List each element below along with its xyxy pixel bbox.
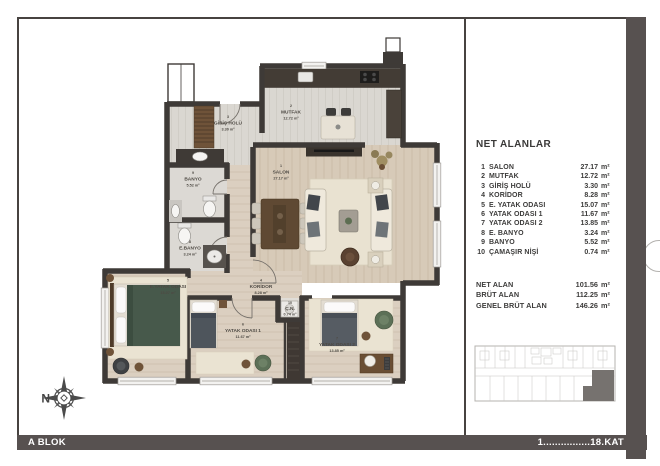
total-row: NET ALAN 101.56 m² bbox=[476, 280, 614, 290]
room-name: KORİDOR bbox=[489, 191, 584, 200]
area-unit: m² bbox=[601, 301, 614, 311]
room-area: 5.52 bbox=[584, 238, 598, 247]
room-area: 15.07 bbox=[580, 201, 598, 210]
total-area: 112.25 bbox=[576, 290, 598, 300]
nightstand bbox=[219, 300, 227, 308]
room-area: 3.30 bbox=[584, 182, 598, 191]
total-row: BRÜT ALAN 112.25 m² bbox=[476, 290, 614, 300]
total-area: 101.56 bbox=[576, 280, 598, 290]
svg-text:7: 7 bbox=[336, 337, 338, 341]
room-number: 2 bbox=[476, 172, 485, 181]
area-unit: m² bbox=[601, 191, 614, 200]
tall-cabinet bbox=[387, 90, 402, 138]
room-name: SALON bbox=[489, 163, 580, 172]
room-area: 8.28 bbox=[584, 191, 598, 200]
room-area: 12.72 bbox=[580, 172, 598, 181]
svg-text:3: 3 bbox=[227, 115, 229, 119]
svg-text:10: 10 bbox=[288, 301, 292, 305]
room-area: 3.24 bbox=[584, 229, 598, 238]
legend-row: 4 KORİDOR 8.28 m² bbox=[476, 191, 614, 200]
room-name: E. YATAK ODASI bbox=[489, 201, 580, 210]
room-number: 4 bbox=[476, 191, 485, 200]
svg-text:3.24 m²: 3.24 m² bbox=[183, 253, 197, 257]
cooktop bbox=[360, 71, 379, 83]
block-label: A BLOK bbox=[28, 437, 66, 448]
area-unit: m² bbox=[601, 248, 614, 257]
svg-text:6: 6 bbox=[242, 323, 244, 327]
legend-row: 10 ÇAMAŞIR NİŞİ 0.74 m² bbox=[476, 248, 614, 257]
room-area: 27.17 bbox=[580, 163, 598, 172]
svg-text:11.67 m²: 11.67 m² bbox=[236, 335, 252, 339]
panel-divider bbox=[464, 17, 466, 435]
svg-text:BANYO: BANYO bbox=[184, 177, 202, 183]
svg-text:27.17 m²: 27.17 m² bbox=[273, 177, 289, 181]
room-number: 1 bbox=[476, 163, 485, 172]
room-area: 0.74 bbox=[584, 248, 598, 257]
legend-row: 5 E. YATAK ODASI 15.07 m² bbox=[476, 201, 614, 210]
svg-text:MUTFAK: MUTFAK bbox=[281, 110, 302, 116]
plant bbox=[379, 164, 385, 170]
svg-text:5.52 m²: 5.52 m² bbox=[186, 184, 200, 188]
svg-text:1: 1 bbox=[280, 164, 282, 168]
room-number: 9 bbox=[476, 238, 485, 247]
area-unit: m² bbox=[601, 238, 614, 247]
svg-text:3.30 m²: 3.30 m² bbox=[221, 128, 235, 132]
total-name: NET ALAN bbox=[476, 280, 576, 290]
area-unit: m² bbox=[601, 210, 614, 219]
svg-text:KORİDOR: KORİDOR bbox=[250, 283, 273, 290]
room-name: E. BANYO bbox=[489, 229, 584, 238]
room-name: GİRİŞ HOLÜ bbox=[489, 182, 584, 191]
room-name: YATAK ODASI 2 bbox=[489, 219, 580, 228]
svg-text:4: 4 bbox=[260, 279, 262, 283]
svg-text:SALON: SALON bbox=[273, 170, 290, 176]
svg-text:0.74 m²: 0.74 m² bbox=[283, 313, 297, 317]
svg-text:15.07 m²: 15.07 m² bbox=[160, 291, 176, 295]
floor-corridor-horizontal bbox=[188, 271, 302, 298]
net-areas-title: NET ALANLAR bbox=[476, 139, 614, 150]
pouf bbox=[362, 332, 371, 341]
area-unit: m² bbox=[601, 219, 614, 228]
right-accent-bar bbox=[626, 17, 646, 459]
room-area: 11.67 bbox=[581, 210, 598, 219]
legend-row: 8 E. BANYO 3.24 m² bbox=[476, 229, 614, 238]
svg-text:8.28 m²: 8.28 m² bbox=[254, 291, 268, 295]
legend-row: 3 GİRİŞ HOLÜ 3.30 m² bbox=[476, 182, 614, 191]
north-label: N bbox=[41, 392, 50, 406]
svg-text:YATAK ODASI 2: YATAK ODASI 2 bbox=[319, 342, 355, 348]
svg-text:12.72 m²: 12.72 m² bbox=[283, 117, 299, 121]
svg-text:5: 5 bbox=[167, 279, 169, 283]
svg-text:E.BANYO: E.BANYO bbox=[179, 246, 201, 252]
page: 1 SALON 27.17 m² 2 MUTFAK 12.72 m² 3 GİR… bbox=[0, 0, 660, 466]
legend-row: 2 MUTFAK 12.72 m² bbox=[476, 172, 614, 181]
svg-text:9: 9 bbox=[192, 171, 194, 175]
svg-text:8: 8 bbox=[189, 240, 191, 244]
area-unit: m² bbox=[601, 172, 614, 181]
area-unit: m² bbox=[601, 163, 614, 172]
legend-row: 1 SALON 27.17 m² bbox=[476, 163, 614, 172]
svg-text:13.85 m²: 13.85 m² bbox=[329, 349, 345, 353]
legend-row: 7 YATAK ODASI 2 13.85 m² bbox=[476, 219, 614, 228]
pouf bbox=[242, 360, 251, 369]
toilet bbox=[204, 201, 216, 217]
room-name: BANYO bbox=[489, 238, 584, 247]
room-number: 5 bbox=[476, 201, 485, 210]
net-areas-totals: NET ALAN 101.56 m² BRÜT ALAN 112.25 m² G… bbox=[476, 280, 614, 311]
net-areas-rows: 1 SALON 27.17 m² 2 MUTFAK 12.72 m² 3 GİR… bbox=[476, 163, 614, 257]
room-name: ÇAMAŞIR NİŞİ bbox=[489, 248, 584, 257]
legend-row: 9 BANYO 5.52 m² bbox=[476, 238, 614, 247]
total-row: GENEL BRÜT ALAN 146.26 m² bbox=[476, 301, 614, 311]
svg-text:2: 2 bbox=[290, 104, 292, 108]
area-unit: m² bbox=[601, 280, 614, 290]
floor-corridor-vertical bbox=[227, 165, 253, 271]
svg-text:Ç.N.: Ç.N. bbox=[285, 306, 295, 312]
room-number: 7 bbox=[476, 219, 485, 228]
toilet-tank bbox=[203, 196, 216, 201]
svg-text:GİRİŞ HOLÜ: GİRİŞ HOLÜ bbox=[214, 120, 243, 127]
area-unit: m² bbox=[601, 290, 614, 300]
room-number: 3 bbox=[476, 182, 485, 191]
area-unit: m² bbox=[601, 201, 614, 210]
total-name: GENEL BRÜT ALAN bbox=[476, 301, 576, 311]
key-plan bbox=[474, 343, 618, 405]
svg-text:YATAK ODASI 1: YATAK ODASI 1 bbox=[225, 328, 261, 334]
desk-chair bbox=[365, 356, 376, 367]
total-area: 146.26 bbox=[576, 301, 598, 311]
kitchen-sink bbox=[298, 72, 313, 82]
vanity-sink bbox=[193, 152, 208, 161]
room-name: YATAK ODASI 1 bbox=[489, 210, 581, 219]
room-number: 6 bbox=[476, 210, 485, 219]
pouf bbox=[135, 363, 144, 372]
legend-row: 6 YATAK ODASI 1 11.67 m² bbox=[476, 210, 614, 219]
compass-rose: N bbox=[20, 372, 100, 430]
svg-text:E.YATAK ODASI: E.YATAK ODASI bbox=[150, 284, 187, 290]
total-name: BRÜT ALAN bbox=[476, 290, 576, 300]
net-areas-panel: NET ALANLAR 1 SALON 27.17 m² 2 MUTFAK 12… bbox=[476, 139, 614, 311]
footer-bar: A BLOK 1................18.KAT 3+1 bbox=[17, 435, 647, 450]
room-area: 13.85 bbox=[580, 219, 598, 228]
wardrobe bbox=[287, 322, 300, 380]
area-unit: m² bbox=[601, 182, 614, 191]
kitchen-counter bbox=[265, 69, 401, 88]
area-unit: m² bbox=[601, 229, 614, 238]
room-name: MUTFAK bbox=[489, 172, 580, 181]
room-number: 10 bbox=[476, 248, 485, 257]
room-number: 8 bbox=[476, 229, 485, 238]
